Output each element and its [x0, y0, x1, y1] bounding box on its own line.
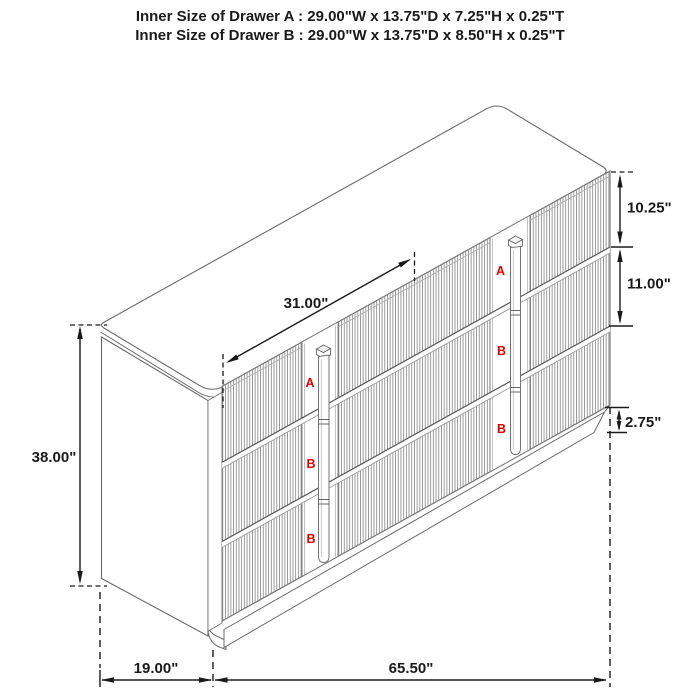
- dim-top-drawer: 10.25": [611, 172, 672, 247]
- side-panel: [102, 337, 209, 636]
- drawer-label-b1-right: B: [497, 344, 506, 358]
- dim-top-drawer-label: 10.25": [627, 200, 672, 217]
- corner-stile: [208, 393, 222, 632]
- dim-base: 2.75": [605, 408, 661, 433]
- dim-middle-drawer-label: 11.00": [627, 276, 671, 293]
- drawer-label-b2-right: B: [497, 422, 506, 436]
- dim-top-span-label: 31.00": [284, 295, 329, 312]
- dim-depth-label: 19.00": [134, 660, 179, 677]
- title-drawer-b: Inner Size of Drawer B : 29.00"W x 13.75…: [135, 27, 564, 44]
- drawer-label-b1-left: B: [306, 457, 315, 471]
- drawer-label-b2-left: B: [306, 532, 315, 546]
- handle-right-bar: [511, 247, 521, 455]
- handle-right: [509, 236, 523, 455]
- dim-height: 38.00": [32, 325, 107, 586]
- dim-base-label: 2.75": [625, 414, 661, 431]
- title-block: Inner Size of Drawer A : 29.00"W x 13.75…: [135, 8, 564, 44]
- title-drawer-a: Inner Size of Drawer A : 29.00"W x 13.75…: [136, 8, 564, 25]
- handle-left-bar: [319, 355, 330, 563]
- handle-left: [317, 345, 331, 563]
- drawer-label-a-left: A: [305, 376, 314, 390]
- fluted-panel-left: [222, 342, 302, 621]
- foot-corner: [208, 629, 226, 650]
- dim-middle-drawer: 11.00": [609, 249, 671, 326]
- dresser-dimension-drawing: A B B A B B 31.00" 38.00" 10.25" 11: [0, 0, 700, 700]
- furniture-dimension-diagram-page: A B B A B B 31.00" 38.00" 10.25" 11: [0, 0, 700, 700]
- cabinet: A B B A B B: [101, 106, 611, 650]
- dim-height-label: 38.00": [32, 449, 77, 466]
- dim-width-label: 65.50": [389, 660, 434, 677]
- fluted-panel-right: [530, 171, 610, 450]
- drawer-label-a-right: A: [496, 264, 505, 278]
